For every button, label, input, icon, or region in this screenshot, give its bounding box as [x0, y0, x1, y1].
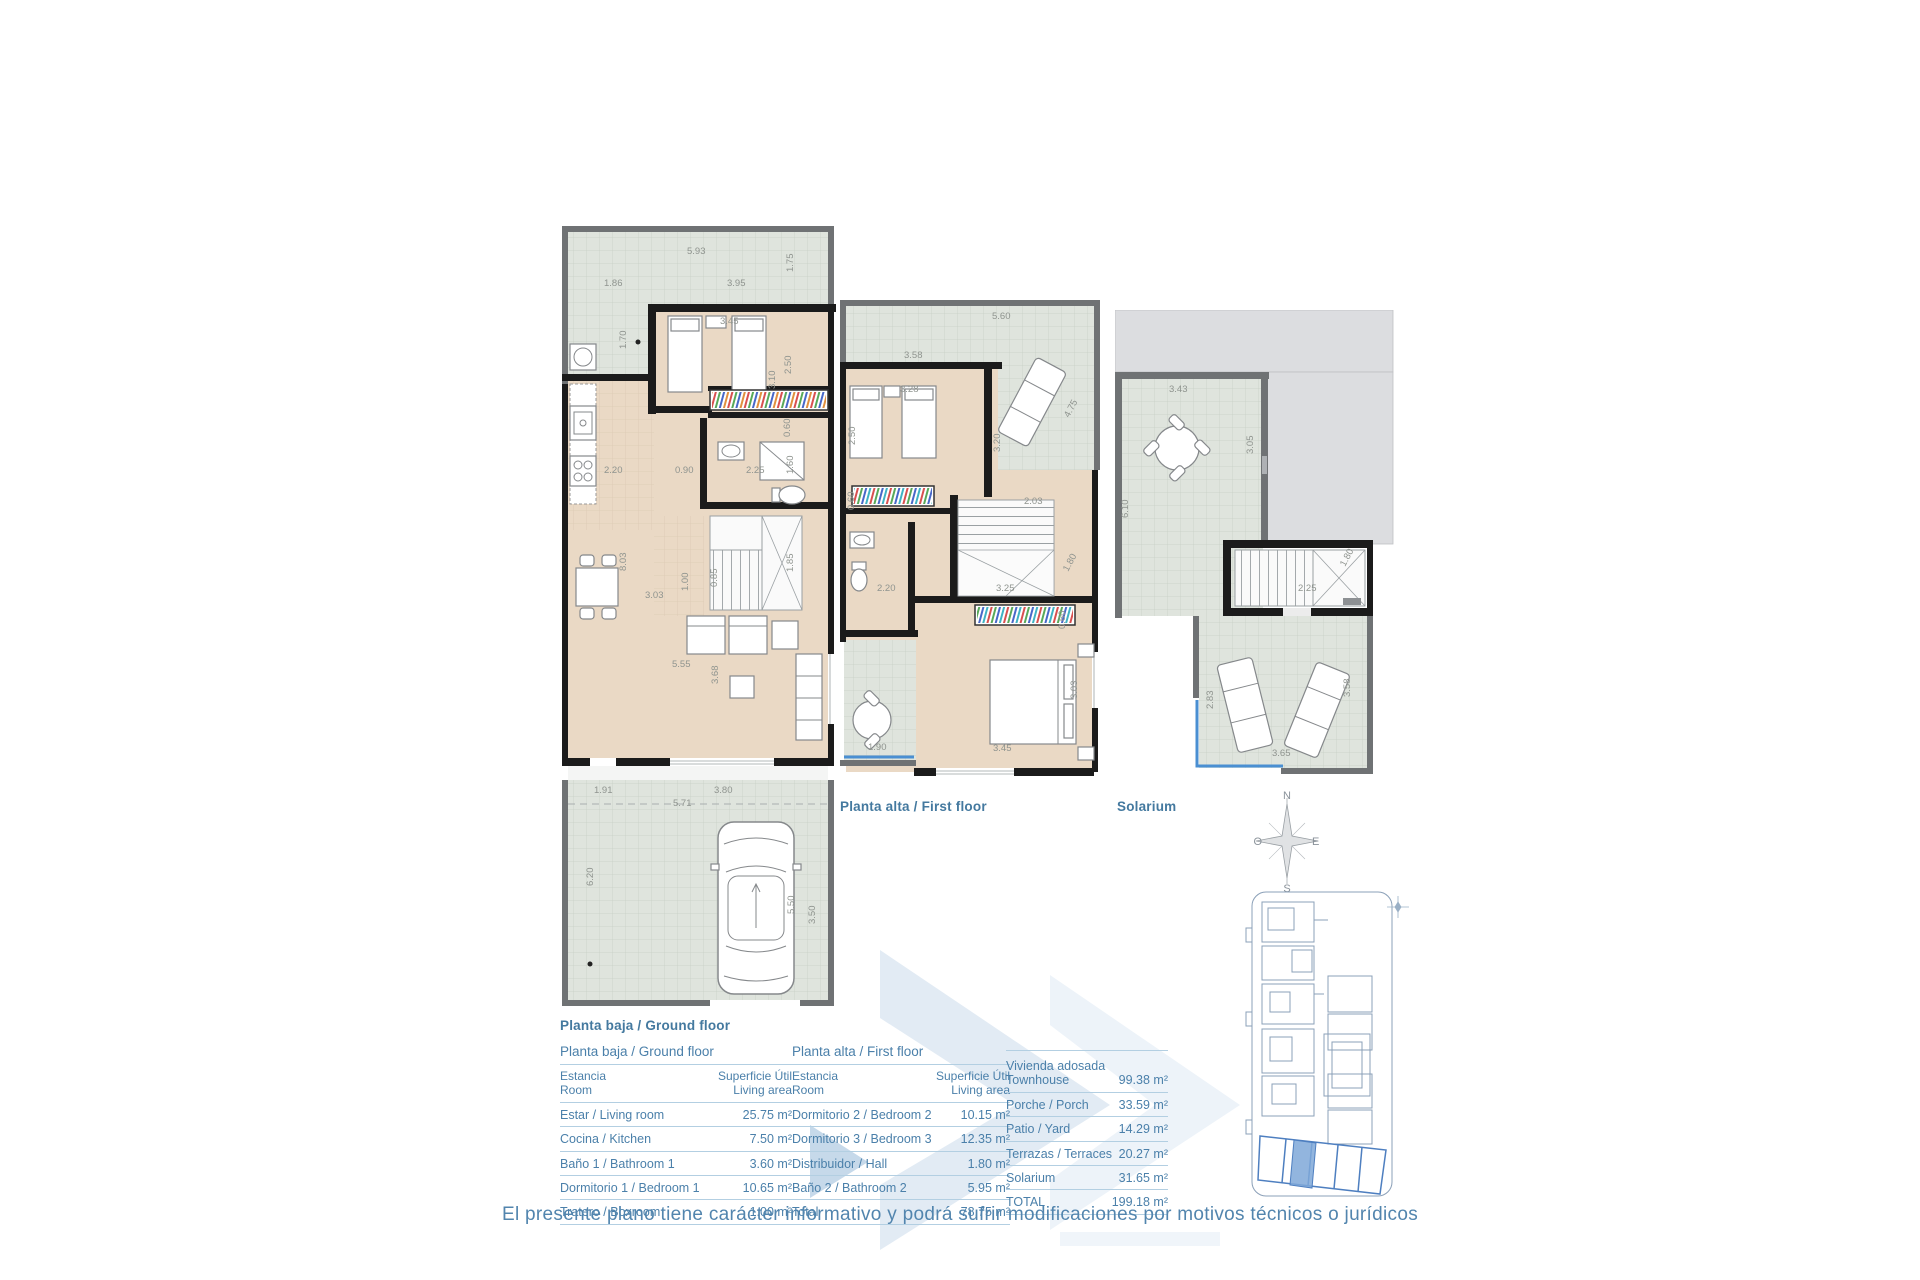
kitchen-fixtures	[570, 384, 596, 504]
header-area-en: Living area	[718, 1083, 792, 1097]
svg-text:5.50: 5.50	[786, 896, 797, 915]
area-value: 20.27 m²	[1119, 1147, 1168, 1161]
room-label: Porche / Porch	[1006, 1098, 1089, 1112]
svg-text:2.50: 2.50	[783, 356, 794, 375]
svg-text:3.03: 3.03	[645, 590, 664, 601]
svg-text:0.85: 0.85	[709, 569, 720, 588]
svg-text:0.60: 0.60	[846, 492, 857, 511]
svg-text:3.20: 3.20	[992, 434, 1003, 453]
header-room-es: Estancia	[560, 1069, 606, 1083]
header-room-es: Estancia	[792, 1069, 838, 1083]
room-label: Distribuidor / Hall	[792, 1157, 887, 1171]
svg-text:3.45: 3.45	[993, 743, 1012, 754]
svg-text:5.55: 5.55	[672, 659, 691, 670]
room-label: Dormitorio 3 / Bedroom 3	[792, 1132, 932, 1146]
highlighted-unit	[1290, 1140, 1316, 1188]
room-label: Vivienda adosada Townhouse	[1006, 1059, 1105, 1088]
table-row: Vivienda adosada Townhouse 99.38 m²	[1006, 1054, 1168, 1093]
table-title: Planta alta / First floor	[792, 1042, 1010, 1065]
first-floor-caption: Planta alta / First floor	[840, 799, 987, 814]
svg-text:2.83: 2.83	[1205, 691, 1216, 710]
first-floor-plan: 5.60 3.58 2.50 3.28 4.75 3.20 2.03 0.60 …	[840, 300, 1108, 795]
area-value: 33.59 m²	[1119, 1098, 1168, 1112]
room-label: Cocina / Kitchen	[560, 1132, 651, 1146]
compass-rose-icon: N S E O	[1254, 790, 1320, 894]
table-row: Estar / Living room 25.75 m²	[560, 1103, 792, 1127]
stairs	[958, 500, 1054, 596]
svg-text:3.95: 3.95	[727, 278, 746, 289]
area-value: 12.35 m²	[961, 1132, 1010, 1146]
table-title: Planta baja / Ground floor	[560, 1042, 792, 1065]
area-value: 10.65 m²	[743, 1181, 792, 1195]
room-label: Estar / Living room	[560, 1108, 664, 1122]
area-value: 3.60 m²	[750, 1157, 792, 1171]
svg-text:1.00: 1.00	[680, 573, 691, 592]
svg-text:1.60: 1.60	[785, 456, 796, 475]
area-value: 1.80 m²	[968, 1157, 1010, 1171]
svg-text:1.85: 1.85	[785, 554, 796, 573]
totals-table: Vivienda adosada Townhouse 99.38 m² Porc…	[1006, 1050, 1168, 1215]
svg-text:3.28: 3.28	[900, 384, 919, 395]
area-value: 99.38 m²	[1119, 1073, 1168, 1087]
floorplan-sheet: 5.93 1.75 1.86 3.95 3.45 2.50 3.10 1.70 …	[0, 0, 1920, 1280]
svg-text:3.65: 3.65	[1272, 748, 1291, 759]
svg-text:2.50: 2.50	[847, 427, 858, 446]
table-row: Baño 1 / Bathroom 1 3.60 m²	[560, 1152, 792, 1176]
table-row: Dormitorio 2 / Bedroom 2 10.15 m²	[792, 1103, 1010, 1127]
table-row: Dormitorio 1 / Bedroom 1 10.65 m²	[560, 1176, 792, 1200]
table-row: Cocina / Kitchen 7.50 m²	[560, 1127, 792, 1151]
table-header: Estancia Room Superficie Útil Living are…	[560, 1065, 792, 1103]
ground-floor-plan: 5.93 1.75 1.86 3.95 3.45 2.50 3.10 1.70 …	[560, 224, 838, 1014]
area-value: 25.75 m²	[743, 1108, 792, 1122]
svg-text:0.60: 0.60	[782, 419, 793, 438]
svg-text:N: N	[1283, 790, 1291, 802]
header-room-en: Room	[560, 1083, 606, 1097]
area-value: 5.95 m²	[968, 1181, 1010, 1195]
svg-text:3.45: 3.45	[720, 316, 739, 327]
solarium-plan: 3.43 3.05 6.10 2.25 1.80 2.83 3.65 3.58	[1115, 310, 1395, 790]
table-row: Patio / Yard 14.29 m²	[1006, 1117, 1168, 1141]
first-floor-table: Planta alta / First floor Estancia Room …	[792, 1042, 1010, 1225]
svg-text:1.70: 1.70	[618, 331, 629, 350]
svg-text:5.60: 5.60	[992, 311, 1011, 322]
svg-text:2.20: 2.20	[877, 583, 896, 594]
table-row: Porche / Porch 33.59 m²	[1006, 1093, 1168, 1117]
solarium-caption: Solarium	[1117, 799, 1176, 814]
svg-text:3.58: 3.58	[904, 350, 923, 361]
room-label: Terrazas / Terraces	[1006, 1147, 1112, 1161]
wardrobe-icon	[852, 486, 934, 506]
svg-text:2.20: 2.20	[604, 465, 623, 476]
room-label: Dormitorio 2 / Bedroom 2	[792, 1108, 932, 1122]
svg-text:3.03: 3.03	[1069, 681, 1080, 700]
svg-text:1.86: 1.86	[604, 278, 623, 289]
header-area-es: Superficie Útil	[936, 1069, 1010, 1083]
room-label: Baño 1 / Bathroom 1	[560, 1157, 675, 1171]
room-label: Dormitorio 1 / Bedroom 1	[560, 1181, 700, 1195]
disclaimer-text: El presente plano tiene carácter informa…	[0, 1204, 1920, 1226]
svg-text:3.43: 3.43	[1169, 384, 1188, 395]
svg-text:8.03: 8.03	[618, 553, 629, 572]
table-row: Terrazas / Terraces 20.27 m²	[1006, 1142, 1168, 1166]
svg-text:0.60: 0.60	[1057, 611, 1068, 630]
svg-text:O: O	[1254, 836, 1262, 848]
svg-text:3.50: 3.50	[807, 906, 818, 925]
svg-text:2.25: 2.25	[1298, 583, 1317, 594]
header-room-en: Room	[792, 1083, 838, 1097]
svg-text:3.68: 3.68	[710, 666, 721, 685]
svg-text:2.03: 2.03	[1024, 496, 1043, 507]
svg-text:3.05: 3.05	[1245, 436, 1256, 455]
wardrobe-icon	[710, 390, 828, 410]
table-row: Baño 2 / Bathroom 2 5.95 m²	[792, 1176, 1010, 1200]
svg-text:3.58: 3.58	[1342, 679, 1353, 698]
svg-text:1.75: 1.75	[785, 254, 796, 273]
highlighted-block-outline	[1258, 1136, 1386, 1194]
svg-text:2.25: 2.25	[746, 465, 765, 476]
svg-text:3.10: 3.10	[767, 371, 778, 390]
area-value: 7.50 m²	[750, 1132, 792, 1146]
area-value: 10.15 m²	[961, 1108, 1010, 1122]
table-row: Distribuidor / Hall 1.80 m²	[792, 1152, 1010, 1176]
svg-text:0.90: 0.90	[675, 465, 694, 476]
ground-floor-table: Planta baja / Ground floor Estancia Room…	[560, 1042, 792, 1225]
room-label: Solarium	[1006, 1171, 1055, 1185]
room-label: Patio / Yard	[1006, 1122, 1070, 1136]
svg-text:3.80: 3.80	[714, 785, 733, 796]
ground-floor-caption: Planta baja / Ground floor	[560, 1018, 730, 1033]
svg-text:3.25: 3.25	[996, 583, 1015, 594]
table-header: Estancia Room Superficie Útil Living are…	[792, 1065, 1010, 1103]
header-area-en: Living area	[936, 1083, 1010, 1097]
svg-text:6.10: 6.10	[1120, 500, 1131, 519]
svg-text:5.71: 5.71	[673, 798, 692, 809]
svg-text:E: E	[1312, 836, 1319, 848]
area-value: 14.29 m²	[1119, 1122, 1168, 1136]
area-value: 31.65 m²	[1119, 1171, 1168, 1185]
svg-text:6.20: 6.20	[585, 868, 596, 887]
room-label: Baño 2 / Bathroom 2	[792, 1181, 907, 1195]
site-plan-thumbnail	[1236, 884, 1432, 1220]
svg-text:1.91: 1.91	[594, 785, 613, 796]
table-row: Dormitorio 3 / Bedroom 3 12.35 m²	[792, 1127, 1010, 1151]
svg-text:1.90: 1.90	[868, 742, 887, 753]
header-area-es: Superficie Útil	[718, 1069, 792, 1083]
svg-text:5.93: 5.93	[687, 246, 706, 257]
table-row: Solarium 31.65 m²	[1006, 1166, 1168, 1190]
